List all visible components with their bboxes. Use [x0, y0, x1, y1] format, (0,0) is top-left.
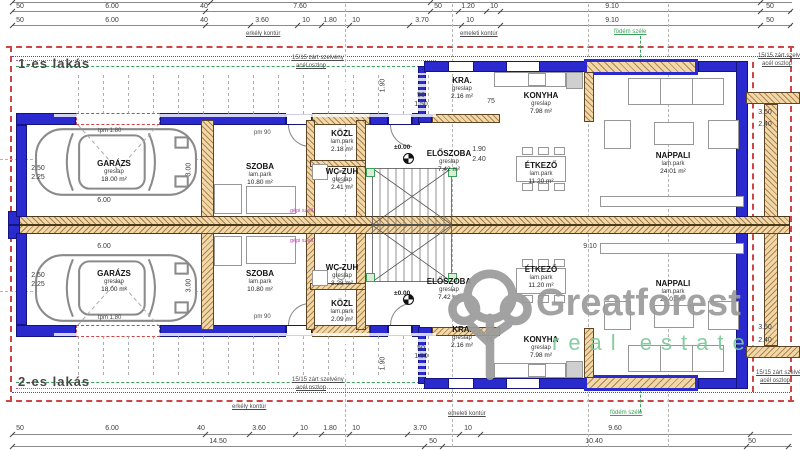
dim-label: 75 — [485, 337, 493, 344]
furniture-chair — [538, 295, 549, 303]
room-name: KÖZL — [330, 130, 353, 139]
benchmark-symbol — [403, 294, 414, 305]
room-label-szoba-u1: SZOBA lam.park 10.80 m² — [246, 163, 274, 186]
unit-2-title: 2-es lakás — [18, 374, 90, 389]
dim-label: 3.60 — [255, 17, 269, 24]
dim-label: 50 — [16, 425, 24, 432]
string-line-blue-bottom — [12, 392, 790, 393]
room-area: 2.09 m² — [330, 316, 353, 323]
annotation-mech-vent-u1: gépi szell. — [290, 208, 314, 214]
dim-label: 50 — [417, 345, 425, 352]
furniture-armchair — [708, 301, 739, 330]
dim-label: 50 — [429, 438, 437, 445]
room-label-wc-u1: WC-ZUH greslap 2.41 m² — [326, 168, 358, 191]
furniture-wardrobe — [214, 236, 242, 266]
dim-label: 2.50 — [31, 272, 45, 279]
furniture-sofa — [628, 78, 724, 105]
dim-label: 1.50 — [414, 101, 428, 108]
dim-label: 9.10 — [605, 3, 619, 10]
room-floor: lam.park — [246, 279, 274, 286]
level-marker-u1: ±0.00 — [394, 144, 410, 151]
furniture-sofa — [628, 345, 724, 372]
room-floor: lam.park — [525, 275, 557, 282]
dim-tick — [788, 9, 794, 15]
room-name: SZOBA — [246, 163, 274, 172]
room-floor: greslap — [427, 159, 471, 166]
dim-label: 2.40 — [758, 121, 772, 128]
dim-label: 10 — [352, 425, 360, 432]
dim-label: 7.60 — [293, 3, 307, 10]
geometry-mirror — [0, 225, 800, 392]
benchmark-symbol — [403, 153, 414, 164]
annotation-pm90-u2: pm 90 — [254, 314, 271, 320]
room-area: 11.20 m² — [525, 178, 557, 185]
dim-line — [12, 434, 792, 435]
annotation-balcony-contour-bottom: erkély kontúr — [232, 404, 266, 410]
annotation-slab-edge-top: födém széle — [614, 29, 646, 35]
annotation-mech-vent-u2: gépi szell. — [290, 238, 314, 244]
sofa-seam — [692, 345, 693, 372]
room-name: KRA. — [451, 77, 473, 86]
annotation-upper-floor-contour-bottom: emeleti kontúr — [448, 411, 486, 417]
dim-label: 3.70 — [415, 17, 429, 24]
room-name: NAPPALI — [656, 280, 691, 289]
dim-label: 9.10 — [605, 17, 619, 24]
floor-plan-sheet: 50 6.00 40 7.60 50 1.20 10 9.10 50 50 6.… — [0, 0, 800, 450]
dim-label: 1.80 — [323, 425, 337, 432]
annotation-steel-column-4b: acél oszlop — [760, 378, 790, 384]
furniture-coffee-table — [654, 122, 694, 145]
room-floor: lam.park — [330, 139, 353, 146]
furniture-bed — [246, 186, 296, 214]
dim-label: 14.50 — [209, 438, 227, 445]
dim-label: 1.20 — [461, 3, 475, 10]
room-label-szoba-u2: SZOBA lam.park 10.80 m² — [246, 270, 274, 293]
furniture-tv-bench — [600, 196, 744, 207]
dim-label: 3.50 — [758, 109, 772, 116]
dim-label: 50 — [766, 17, 774, 24]
room-area: 7.98 m² — [524, 108, 559, 115]
room-area: 18.00 m² — [97, 286, 131, 293]
room-floor: greslap — [97, 279, 131, 286]
furniture-chair — [554, 295, 565, 303]
room-area: 24.01 m² — [656, 168, 691, 175]
room-label-kra-u1: KRA. greslap 2.16 m² — [451, 77, 473, 100]
dim-label: 10 — [300, 425, 308, 432]
room-area: 10.80 m² — [246, 286, 274, 293]
dim-line — [12, 25, 792, 26]
room-name: ÉTKEZŐ — [525, 266, 557, 275]
dim-label: 2.25 — [31, 174, 45, 181]
furniture-wardrobe — [214, 184, 242, 214]
furniture-armchair — [604, 120, 631, 149]
dim-label: 3.60 — [252, 425, 266, 432]
room-floor: lam.park — [656, 161, 691, 168]
dim-label: 10 — [464, 425, 472, 432]
annotation-upper-floor-contour-top: emeleti kontúr — [460, 31, 498, 37]
slab-edge-leader-bottom — [640, 390, 641, 412]
room-area: 7.42 m² — [427, 294, 471, 301]
room-floor: greslap — [451, 86, 473, 93]
dim-label: 50 — [434, 3, 442, 10]
room-floor: lam.park — [330, 309, 353, 316]
dim-line — [12, 2, 792, 3]
dim-label: 6.00 — [105, 425, 119, 432]
room-area: 7.42 m² — [427, 166, 471, 173]
room-area: 2.18 m² — [330, 146, 353, 153]
room-floor: greslap — [524, 101, 559, 108]
room-name: ÉTKEZŐ — [525, 162, 557, 171]
annotation-steel-column-1b: acél oszlop — [296, 63, 326, 69]
room-label-eloszoba-u1: ELŐSZOBA greslap 7.42 m² — [427, 150, 471, 173]
room-label-nappali-u2: NAPPALI lam.park 24.01 m² — [656, 280, 691, 303]
annotation-pm90-u1: pm 90 — [254, 130, 271, 136]
dim-label: 2.50 — [31, 165, 45, 172]
dim-line — [12, 446, 792, 447]
room-label-wc-u2: WC-ZUH greslap 3.28 m² — [326, 264, 358, 287]
furniture-chair — [554, 147, 565, 155]
dim-label: 6.00 — [105, 3, 119, 10]
room-name: WC-ZUH — [326, 168, 358, 177]
annotation-steel-column-2b: acél oszlop — [762, 61, 792, 67]
fixture-stove — [528, 73, 546, 86]
dim-label: 2.40 — [758, 337, 772, 344]
dim-label: 9.10 — [583, 243, 597, 250]
room-label-garage-u2: GARÁZS greslap 18.00 m² — [97, 270, 131, 293]
annotation-steel-column-1a: 15/15 zárt szelvény — [292, 55, 344, 61]
dim-label: 2.40 — [472, 156, 486, 163]
unit-1-title: 1-es lakás — [18, 56, 90, 71]
room-name: NAPPALI — [656, 152, 691, 161]
furniture-tv-bench — [600, 243, 744, 254]
annotation-steel-column-4a: 15/15 zárt szelvény — [756, 370, 800, 376]
room-label-eloszoba-u2: ELŐSZOBA greslap 7.42 m² — [427, 278, 471, 301]
room-name: ELŐSZOBA — [427, 150, 471, 159]
dim-label: 6.00 — [97, 197, 111, 204]
room-name: WC-ZUH — [326, 264, 358, 273]
room-label-etkezo-u1: ÉTKEZŐ lam.park 11.20 m² — [525, 162, 557, 185]
dim-label: 75 — [487, 98, 495, 105]
room-floor: lam.park — [525, 171, 557, 178]
dim-label: 3.00 — [185, 279, 192, 293]
room-area: 2.16 m² — [451, 93, 473, 100]
room-area: 3.28 m² — [326, 280, 358, 287]
dim-tick — [788, 23, 794, 29]
room-name: KRA. — [451, 326, 473, 335]
dim-label: 10 — [352, 17, 360, 24]
geometry-base — [0, 58, 800, 225]
room-label-konyha-u2: KONYHA greslap 7.98 m² — [524, 336, 559, 359]
dim-label: 1.50 — [414, 353, 428, 360]
dim-label: 9.60 — [608, 425, 622, 432]
annotation-balcony-contour-top: erkély kontúr — [246, 31, 280, 37]
room-floor: greslap — [97, 169, 131, 176]
furniture-chair — [522, 147, 533, 155]
room-area: 10.80 m² — [246, 179, 274, 186]
room-label-kozl-u1: KÖZL lam.park 2.18 m² — [330, 130, 353, 153]
room-name: KONYHA — [524, 92, 559, 101]
dim-label: 1.90 — [379, 79, 386, 93]
dim-label: 3.70 — [413, 425, 427, 432]
room-area: 7.98 m² — [524, 352, 559, 359]
room-name: ELŐSZOBA — [427, 278, 471, 287]
dim-label: 10 — [302, 17, 310, 24]
room-floor: greslap — [451, 335, 473, 342]
room-name: GARÁZS — [97, 160, 131, 169]
dim-label: 10 — [466, 17, 474, 24]
dim-label: 6.00 — [105, 17, 119, 24]
room-name: KONYHA — [524, 336, 559, 345]
room-floor: lam.park — [656, 289, 691, 296]
dim-label: 50 — [16, 3, 24, 10]
dim-label: 50 — [417, 92, 425, 99]
balcony-contour-line-top — [6, 46, 794, 48]
room-label-kozl-u2: KÖZL lam.park 2.09 m² — [330, 300, 353, 323]
annotation-slab-edge-bottom: födém széle — [610, 410, 642, 416]
room-area: 11.20 m² — [525, 282, 557, 289]
dim-label: 1.80 — [323, 17, 337, 24]
balcony-contour-line-bottom — [6, 400, 794, 402]
sofa-seam — [660, 78, 661, 105]
furniture-chair — [522, 295, 533, 303]
annotation-tpm-u2: tpm 1.80 — [98, 315, 121, 321]
room-name: SZOBA — [246, 270, 274, 279]
room-floor: greslap — [326, 177, 358, 184]
room-floor: lam.park — [246, 172, 274, 179]
sofa-seam — [660, 345, 661, 372]
sofa-seam — [692, 78, 693, 105]
room-label-kra-u2: KRA. greslap 2.16 m² — [451, 326, 473, 349]
room-name: GARÁZS — [97, 270, 131, 279]
room-name: KÖZL — [330, 300, 353, 309]
dim-label: 40 — [197, 425, 205, 432]
room-floor: greslap — [326, 273, 358, 280]
room-floor: greslap — [427, 287, 471, 294]
dim-label: 50 — [766, 3, 774, 10]
annotation-tpm-u1: tpm 1.80 — [98, 128, 121, 134]
fixture-fridge — [566, 361, 583, 378]
dim-label: 50 — [16, 17, 24, 24]
furniture-bed — [246, 236, 296, 264]
dim-label: 1.90 — [379, 357, 386, 371]
annotation-steel-column-3a: 15/15 zárt szelvény — [292, 377, 344, 383]
dim-label: 6.00 — [97, 243, 111, 250]
room-label-garage-u1: GARÁZS greslap 18.00 m² — [97, 160, 131, 183]
annotation-steel-column-2a: 15/15 zárt szelvény — [758, 53, 800, 59]
furniture-coffee-table — [654, 305, 694, 328]
fixture-stove — [528, 364, 546, 377]
room-area: 18.00 m² — [97, 176, 131, 183]
dim-label: 3.50 — [758, 324, 772, 331]
string-line-blue-top — [12, 56, 790, 57]
dim-line — [12, 11, 792, 12]
room-label-etkezo-u2: ÉTKEZŐ lam.park 11.20 m² — [525, 266, 557, 289]
annotation-steel-column-3b: acél oszlop — [296, 385, 326, 391]
dim-label: 2.25 — [31, 281, 45, 288]
furniture-chair — [538, 147, 549, 155]
furniture-armchair — [604, 301, 631, 330]
room-floor: greslap — [524, 345, 559, 352]
room-area: 24.01 m² — [656, 296, 691, 303]
furniture-armchair — [708, 120, 739, 149]
dim-label: 3.00 — [185, 163, 192, 177]
dim-label: 10 — [490, 3, 498, 10]
room-label-konyha-u1: KONYHA greslap 7.98 m² — [524, 92, 559, 115]
fixture-fridge — [566, 72, 583, 89]
dim-label: 1.90 — [472, 146, 486, 153]
room-area: 2.16 m² — [451, 342, 473, 349]
room-label-nappali-u1: NAPPALI lam.park 24.01 m² — [656, 152, 691, 175]
room-area: 2.41 m² — [326, 184, 358, 191]
